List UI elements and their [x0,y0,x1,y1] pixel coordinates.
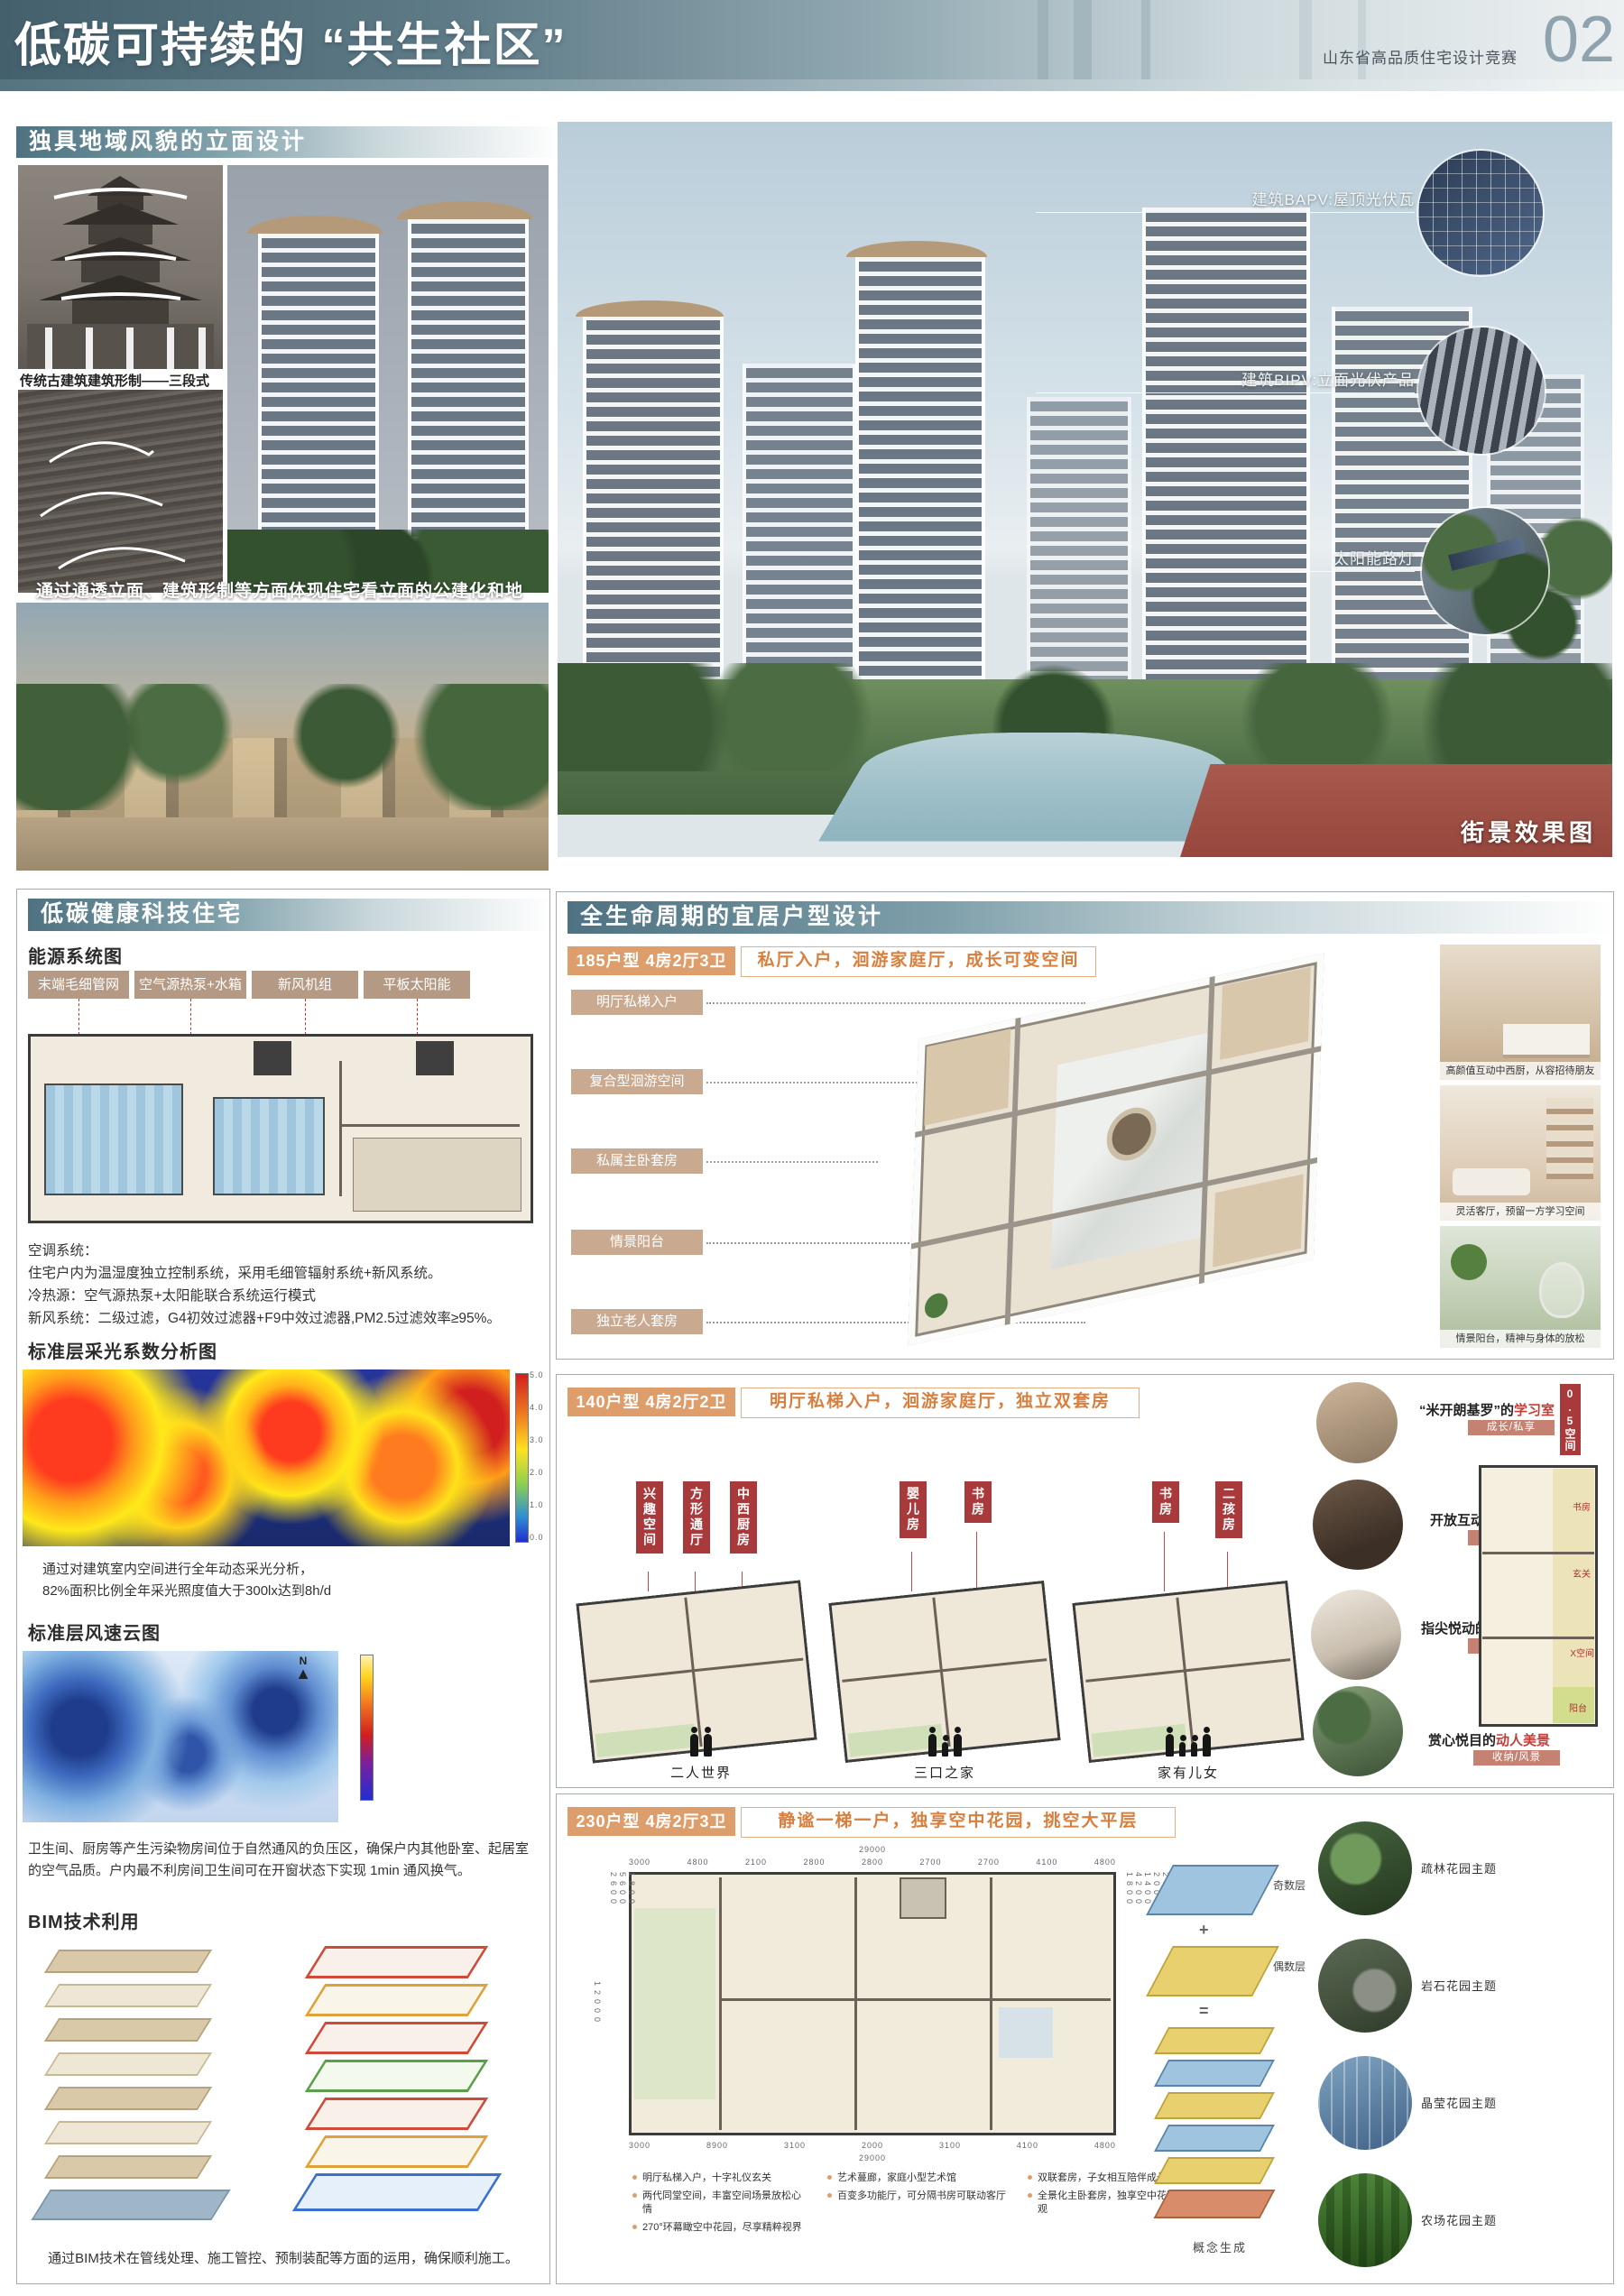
bim-slab [44,1984,212,2007]
header-streak [1038,0,1048,79]
scale-tick: 5.0 [530,1370,544,1379]
room-tag-kitchen: 中西厨房 [730,1481,757,1554]
garden-label-crystal: 晶莹花园主题 [1421,2094,1497,2111]
person-icon [928,1734,937,1757]
photo-caption: 情景阳台，精神与身体的放松 [1440,1330,1601,1348]
plan185-photo-kitchen: 高颜值互动中西厨，从容招待朋友 [1440,945,1601,1080]
render-tower [1027,397,1131,704]
bullet-item: 两代同堂空间，丰富空间场景放松心情 [632,2190,808,2217]
family-silhouette-kids [1134,1734,1242,1757]
axon-bedroom-floor [924,1028,1010,1125]
plan230-badge: 230户型 4房2厅3卫 [567,1807,735,1836]
plan-pool [44,1083,183,1195]
header-streak [1299,0,1312,79]
plan185-label-elder-suite: 独立老人套房 [571,1309,703,1334]
scale-tick: 2.0 [530,1468,544,1477]
header-streak [1141,0,1150,79]
stack-slab [1154,2092,1275,2119]
compass-arrow-icon: ▲ [288,1667,318,1680]
plan185-label-master-suite: 私属主卧套房 [571,1148,703,1174]
feature-view: 赏心悦目的动人美景 [1428,1730,1550,1749]
bim-slab [44,2155,212,2179]
tag-leader [648,1572,649,1591]
bim-axon-right [288,1941,531,2238]
render-tower-roof [846,241,987,257]
room-tag-square-hall: 方形通厅 [683,1481,710,1554]
mini-room-balcony: 阳台 [1569,1701,1587,1714]
pagoda-silhouette-icon [18,165,223,369]
plan-pool [213,1097,325,1195]
poster-board: 低碳可持续的 “共生社区” 山东省高品质住宅设计竞赛 02 独具地域风貌的立面设… [0,0,1624,2296]
family-caption-couple: 二人世界 [647,1763,755,1782]
equals-icon: = [1199,2002,1209,2021]
bim-slab [44,1950,212,1973]
plan185-section: 全生命周期的宜居户型设计 185户型 4房2厅3卫 私厅入户，洄游家庭厅，成长可… [556,891,1614,1360]
plan185-label-scene-balcony: 情景阳台 [571,1230,703,1255]
plan-wall [990,1877,992,2130]
family-silhouette-couple [647,1734,755,1757]
garden-photo-crystal [1318,2056,1412,2150]
render-tower [583,316,724,704]
feature-highlight: 学习室 [1514,1403,1555,1418]
bullet-item: 明厅私梯入户，十字礼仪玄关 [632,2172,808,2185]
header-band: 低碳可持续的 “共生社区” 山东省高品质住宅设计竞赛 02 [0,0,1624,79]
daylight-description: 通过对建筑室内空间进行全年动态采光分析， 82%面积比例全年采光照度值大于300… [42,1559,530,1602]
plan185-badge: 185户型 4房2厅3卫 [567,946,735,975]
street-render: 建筑BAPV:屋顶光伏瓦 建筑BIPV:立面光伏产品 太阳能路灯 街景效果图 [558,122,1612,857]
feature-photo-balcony-view [1313,1686,1403,1776]
poster-title: 低碳可持续的 “共生社区” [14,7,567,75]
person-icon [1203,1734,1211,1757]
annotation-solar-lamp: 太阳能路灯 [1144,546,1415,572]
energy-leader-line [78,999,79,1035]
plan-core [254,1041,291,1075]
plan230-bullets-col1: 明厅私梯入户，十字礼仪玄关 两代同堂空间，丰富空间场景放松心情 270°环幕瞰空… [632,2172,808,2238]
bim-wire-slab [305,2022,488,2054]
plan-wall [589,1658,803,1683]
bim-wire-slab [305,2135,488,2168]
plan-wall [339,1061,342,1196]
tower-roof [397,201,532,219]
dim-left-row: 180056002600 [609,1872,636,2135]
scale-tick: 3.0 [530,1435,544,1444]
energy-leader-line [417,999,418,1035]
callout-roof-pv-photo [1418,151,1543,275]
plan-wall [719,1998,1111,2001]
energy-button-solar: 平板太阳能 [364,971,470,999]
energy-button-capillary: 末端毛细管网 [28,971,129,999]
callout-solar-lamp-photo [1422,508,1548,634]
person-icon [690,1734,698,1757]
stack-base [1153,2190,1275,2218]
pagoda-photo [18,165,223,369]
plan-skygarden [634,1908,715,2099]
bim-slab [44,2052,212,2076]
annotation-bapv: 建筑BAPV:屋顶光伏瓦 [1036,187,1415,213]
room-tag-study: 书房 [964,1481,992,1523]
daylight-text-line: 通过对建筑室内空间进行全年动态采光分析， [42,1559,530,1581]
leader-line [706,1161,878,1163]
mini-room-xspace: X空间 [1570,1646,1594,1659]
plan-wall [842,1658,1047,1683]
energy-subtitle: 能源系统图 [28,942,123,968]
sofa [1453,1168,1530,1195]
dim-left-total: 12000 [593,1872,602,2135]
hvac-line: 住宅户内为温湿度独立控制系统，采用毛细管辐射系统+新风系统。 [28,1262,539,1285]
plan185-photo-living: 灵活客厅，预留一方学习空间 [1440,1085,1601,1221]
stack-slab [1154,2125,1275,2152]
annotation-bipv: 建筑BIPV:立面光伏产品 [1036,367,1415,393]
plan140-badge: 140户型 4房2厅2卫 [567,1388,735,1416]
energy-leader-line [190,999,191,1035]
concept-even-label: 偶数层 [1273,1959,1306,1974]
feature-study: “米开朗基罗”的学习室 [1419,1400,1555,1419]
plan140-strip-plan: 书房 玄关 X空间 阳台 [1479,1465,1598,1727]
bullet-item: 艺术蔓廊，家庭小型艺术馆 [827,2172,1008,2185]
room-tag-nursery: 婴儿房 [900,1481,927,1538]
render-tower [743,364,856,705]
plan230-floor-plan [629,1872,1116,2135]
compass-icon: N ▲ [288,1655,318,1680]
tag-leader [695,1572,696,1591]
bim-wire-slab [305,1946,488,1978]
plan140-tagline: 明厅私梯入户，洄游家庭厅，独立双套房 [741,1388,1140,1418]
concept-odd-label: 奇数层 [1273,1877,1306,1893]
plan185-photo-balcony: 情景阳台，精神与身体的放松 [1440,1226,1601,1348]
axon-slab [908,953,1324,1346]
bim-wire-base [292,2173,502,2211]
hanging-chair [1539,1262,1584,1318]
hvac-line: 空调系统： [28,1240,539,1262]
daylight-scale-ticks: 5.0 4.0 3.0 2.0 1.0 0.0 [530,1370,544,1542]
energy-floor-plan [28,1034,533,1223]
tech-section: 低碳健康科技住宅 能源系统图 末端毛细管网 空气源热泵+水箱 新风机组 平板太阳… [16,889,550,2284]
concept-caption: 概念生成 [1152,2238,1287,2255]
garden-label-woodland: 疏林花园主题 [1421,1859,1497,1876]
render-tower [1142,207,1310,711]
daylight-heatmap [23,1369,510,1546]
plan-core [900,1877,946,1919]
feature-prefix: “米开朗基罗”的 [1419,1403,1514,1418]
plan140-section: 140户型 4房2厅2卫 明厅私梯入户，洄游家庭厅，独立双套房 兴趣空间 方形通… [556,1374,1614,1788]
wave-photo [18,390,223,593]
dim-bottom-total: 29000 [629,2153,1116,2162]
family-caption-kids: 家有儿女 [1134,1763,1242,1782]
plan-wall [1482,1637,1594,1639]
feature-prefix: 赏心悦目的 [1428,1733,1496,1748]
garden-label-rock: 岩石花园主题 [1421,1977,1497,1994]
plan-wall [1482,1552,1594,1554]
plan-core [416,1041,454,1075]
axon-plant [925,1291,948,1320]
plan230-section: 230户型 4房2厅3卫 静谧一梯一户，独享空中花园，挑空大平层 29000 3… [556,1793,1614,2284]
header-accent-strip [0,79,1624,91]
garden-photo-rock [1318,1939,1412,2033]
person-icon [704,1734,712,1757]
render-caption: 街景效果图 [1461,815,1596,848]
dim-top-total: 29000 [629,1845,1116,1854]
bim-slab [44,2121,212,2144]
plan185-label-entry: 明厅私梯入户 [571,990,703,1015]
scale-tick: 0.0 [530,1533,544,1542]
child-icon [1179,1742,1186,1757]
bim-description: 通过BIM技术在管线处理、施工管控、预制装配等方面的运用，确保顺利施工。 [28,2248,539,2267]
street-trees [16,684,549,810]
street-commercial-render [16,603,549,871]
plan-wall [1085,1658,1290,1683]
axon-bedroom-floor [1213,1174,1304,1267]
kitchen-island [1503,1024,1590,1055]
energy-button-freshair: 新风机组 [252,971,358,999]
hvac-description: 空调系统： 住宅户内为温湿度独立控制系统，采用毛细管辐射系统+新风系统。 冷热源… [28,1240,539,1330]
bim-axon-left [33,1941,245,2238]
bullet-item: 百变多功能厅，可分隔书房可联动客厅 [827,2190,1008,2203]
person-icon [1166,1734,1174,1757]
stack-slab [1154,2027,1275,2054]
bim-wire-slab [305,1984,488,2016]
mini-room-study: 书房 [1573,1499,1591,1513]
daylight-color-scale [515,1373,529,1543]
wind-description: 卫生间、厨房等产生污染物房间位于自然通风的负压区，确保户内其他卧室、起居室的空气… [28,1839,539,1882]
plan185-label-loop-space: 复合型洄游空间 [571,1069,703,1094]
street-paving [16,817,549,871]
plan230-bullets-col2: 艺术蔓廊，家庭小型艺术馆 百变多功能厅，可分隔书房可联动客厅 [827,2172,1008,2208]
layout-section-title: 全生命周期的宜居户型设计 [567,901,1615,934]
dim-bottom-row: 3000890031002000310041004800 [629,2141,1116,2150]
plan185-tagline: 私厅入户，洄游家庭厅，成长可变空间 [741,946,1096,977]
lamp-panel [1448,537,1526,571]
wind-subtitle: 标准层风速云图 [28,1618,161,1645]
axon-bedroom-floor [1220,967,1311,1060]
tower-roof [247,216,383,234]
bim-base [31,2190,230,2220]
room-tag-second-child: 二孩房 [1215,1481,1242,1538]
pagoda-caption: 传统古建筑建筑形制——三段式 [20,371,209,390]
room-tag-hobby: 兴趣空间 [636,1481,663,1554]
bullet-item: 270°环幕瞰空中花园，尽享精粹视界 [632,2221,808,2235]
child-icon [1191,1742,1197,1757]
tag-leader [1227,1552,1228,1591]
feature-highlight: 动人美景 [1496,1733,1550,1748]
tag-leader [1164,1532,1165,1591]
garden-photo-farm [1318,2173,1412,2267]
plan230-tagline: 静谧一梯一户，独享空中花园，挑空大平层 [741,1807,1176,1838]
person-icon [954,1734,962,1757]
child-icon [942,1742,948,1757]
wave-curve-overlay-icon [18,390,223,593]
hvac-line: 新风系统：二级过滤，G4初效过滤器+F9中效过滤器,PM2.5过滤效率≥95%。 [28,1307,539,1330]
feature-tag-view: 收纳/风景 [1473,1750,1560,1766]
bim-wire-slab [305,2098,488,2130]
bim-slab [44,2018,212,2042]
plan-wall [719,1877,722,2130]
bim-wire-slab [305,2060,488,2092]
concept-stack [1152,2027,1287,2226]
callout-facade-pv-photo [1418,327,1545,454]
scale-tick: 1.0 [530,1500,544,1509]
feature-photo-study [1316,1382,1398,1463]
plus-icon: + [1199,1921,1209,1940]
dim-top-row: 300048002100280028002700270041004800 [629,1858,1116,1867]
half-space-tag: 0.5空间 [1560,1384,1581,1455]
render-tower-roof [576,300,724,317]
feature-photo-piano [1311,1590,1401,1680]
tag-leader [976,1532,977,1591]
page-number: 02 [1543,0,1615,79]
hvac-line: 冷热源：空气源热泵+太阳能联合系统运行模式 [28,1285,539,1307]
feature-tag-study: 成长/私享 [1468,1420,1555,1435]
energy-leader-line [305,999,306,1035]
bookshelf [1546,1098,1593,1179]
family-silhouette-three [890,1734,999,1757]
mini-room-foyer: 玄关 [1573,1566,1591,1580]
balcony-plant [1451,1244,1487,1280]
plan185-axonometric [854,982,1396,1334]
feature-photo-kitchen [1313,1480,1403,1570]
tech-section-title: 低碳健康科技住宅 [28,899,551,931]
photo-caption: 灵活客厅，预留一方学习空间 [1440,1203,1601,1221]
competition-name: 山东省高品质住宅设计竞赛 [1323,45,1518,68]
header-streak [1074,0,1092,79]
scale-tick: 4.0 [530,1403,544,1412]
stack-slab [1154,2157,1275,2184]
energy-button-heatpump: 空气源热泵+水箱 [134,971,246,999]
plan-wall [339,1124,520,1127]
stack-slab [1154,2060,1275,2087]
bim-subtitle: BIM技术利用 [28,1907,140,1933]
photo-caption: 高颜值互动中西厨，从容招待朋友 [1440,1062,1601,1080]
daylight-text-line: 82%面积比例全年采光照度值大于300lx达到8h/d [42,1581,530,1602]
elevation-photo [227,165,549,593]
plan-room-band [353,1138,521,1212]
family-caption-three: 三口之家 [890,1763,999,1782]
garden-photo-woodland [1318,1821,1412,1915]
plan-wall [854,1877,857,2130]
room-tag-study2: 书房 [1152,1481,1179,1523]
facade-section-title: 独具地域风貌的立面设计 [16,126,561,158]
daylight-subtitle: 标准层采光系数分析图 [28,1337,217,1363]
plan-bath [999,2007,1053,2058]
render-tower [855,257,985,708]
wind-color-scale [360,1655,374,1801]
garden-label-farm: 农场花园主题 [1421,2211,1497,2228]
tag-leader [911,1552,912,1591]
bim-slab [44,2087,212,2110]
